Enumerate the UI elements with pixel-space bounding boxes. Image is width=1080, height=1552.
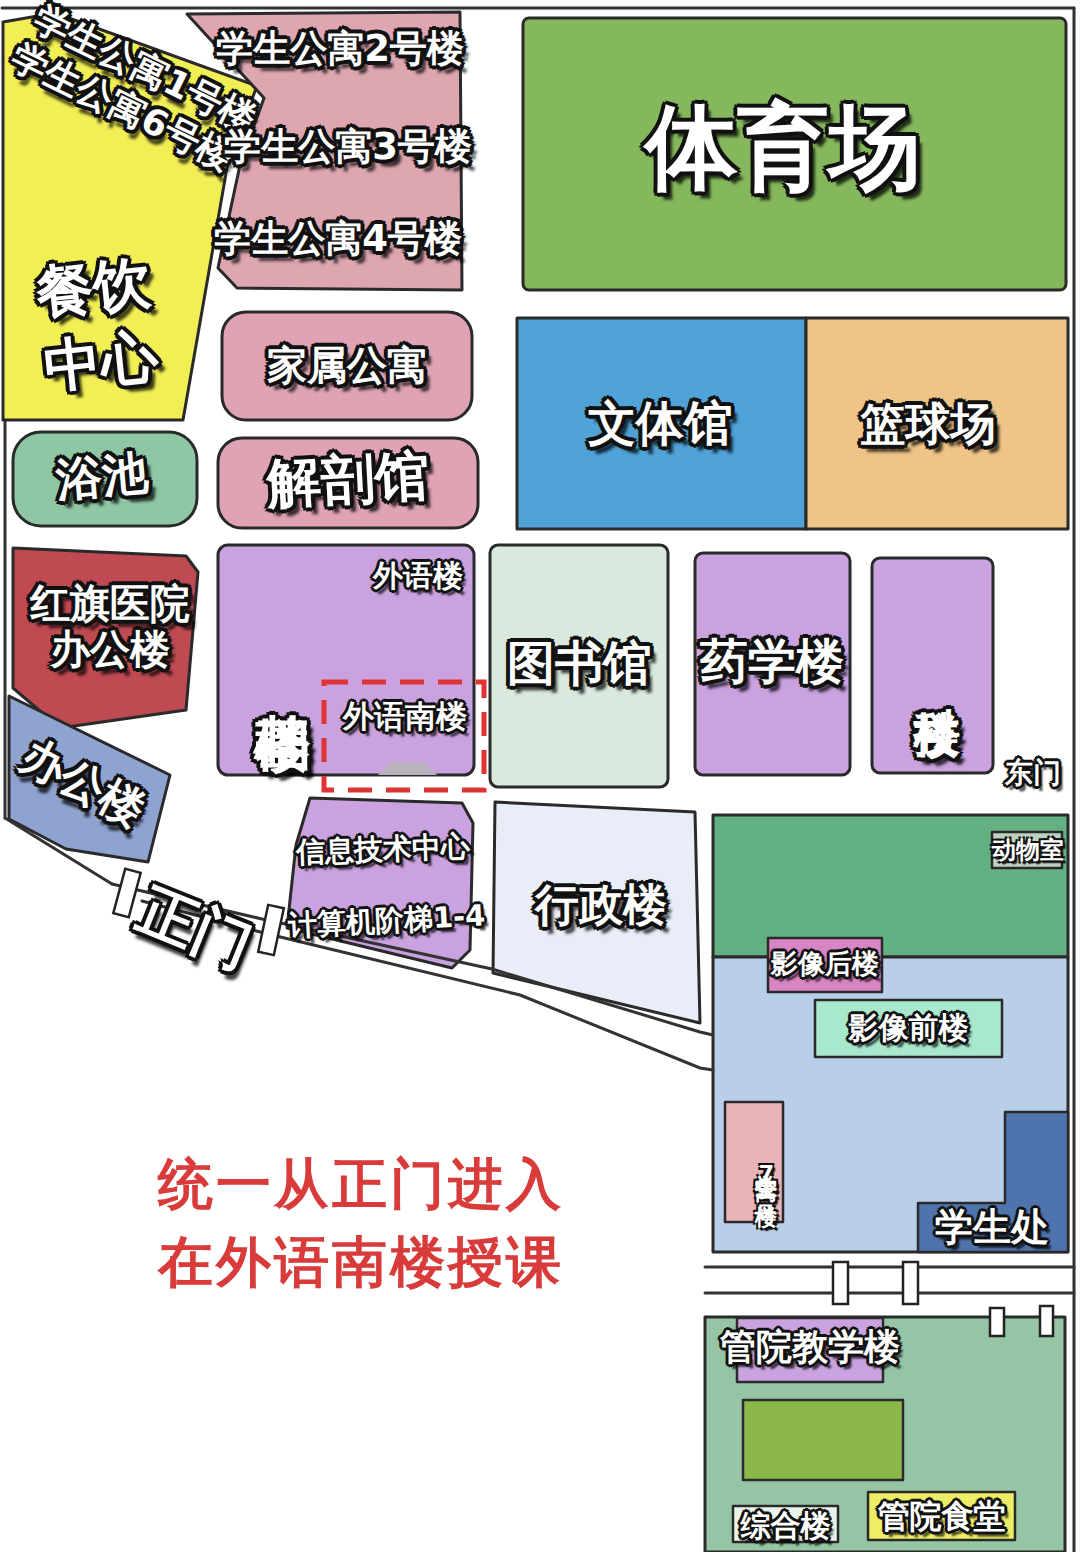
label-pharmacy: 药学楼	[682, 636, 862, 686]
campus-map-graphic	[0, 0, 1080, 1552]
label-hospital-line1: 红旗医院	[25, 580, 195, 626]
label-stadium: 体育场	[563, 100, 1003, 197]
label-dorm4: 学生公寓4号楼	[210, 220, 466, 259]
label-it-center: 信息技术中心	[296, 831, 469, 867]
note-line2: 在外语南楼授课	[158, 1226, 564, 1300]
mgmt-block-gate-icon-1	[990, 1308, 1004, 1336]
label-hongqi-hospital: 红旗医院 办公楼	[25, 580, 195, 672]
mgmt-inner-lawn	[743, 1400, 903, 1480]
label-basketball: 篮球场	[806, 400, 1050, 447]
label-animal-room: 动物室	[992, 838, 1062, 863]
label-imaging-front: 影像前楼	[815, 1012, 1002, 1044]
south-road-gate-icon-2	[903, 1262, 918, 1304]
label-gym: 文体馆	[540, 398, 780, 448]
label-mgmt-canteen: 管院食堂	[868, 1500, 1015, 1534]
label-student-affairs: 学生处	[918, 1208, 1066, 1248]
label-admin: 行政楼	[512, 882, 690, 928]
label-dorm2: 学生公寓2号楼	[212, 30, 468, 69]
label-east-gate: 东门	[992, 758, 1074, 787]
label-canteen-center: 餐饮 中心	[5, 242, 190, 407]
south-road-gate-icon-1	[833, 1262, 848, 1304]
label-library: 图书馆	[490, 638, 668, 688]
mgmt-block-gate-icon-2	[1040, 1306, 1053, 1336]
label-composite: 综合楼	[733, 1510, 838, 1542]
label-foreign: 外语楼	[358, 560, 478, 592]
label-foundation: 基础楼	[244, 566, 312, 776]
label-dorm7: 学生公寓7号楼	[730, 1088, 778, 1258]
label-imaging-rear: 影像后楼	[768, 950, 882, 978]
label-family-apartment: 家属公寓	[226, 344, 468, 386]
label-foreign-south: 外语南楼	[330, 700, 480, 733]
building-it-center	[287, 798, 473, 968]
label-scitech: 科技楼	[906, 584, 962, 764]
label-mgmt-teaching: 管院教学楼	[710, 1328, 910, 1366]
label-dorm3: 学生公寓3号楼	[220, 128, 476, 167]
note-line1: 统一从正门进入	[158, 1148, 564, 1222]
label-hospital-line2: 办公楼	[25, 626, 195, 672]
campus-map: 学生公寓1号楼 学生公寓6号楼 学生公寓2号楼 学生公寓3号楼 学生公寓4号楼 …	[0, 0, 1080, 1552]
